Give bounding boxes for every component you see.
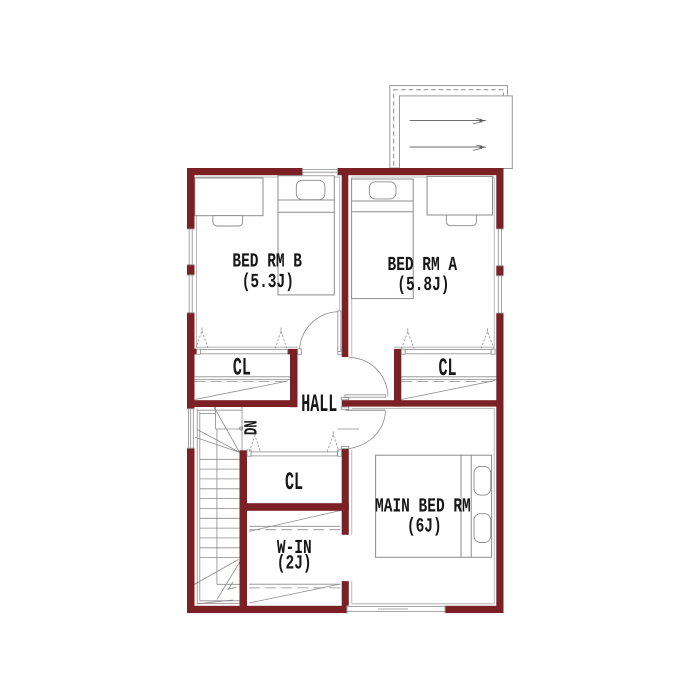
svg-text:HALL: HALL: [301, 390, 337, 419]
svg-text:CL: CL: [285, 468, 303, 497]
svg-text:DN: DN: [241, 420, 262, 435]
svg-text:(5.8J): (5.8J): [397, 274, 449, 297]
svg-text:(5.3J): (5.3J): [242, 271, 294, 294]
svg-text:CL: CL: [438, 354, 456, 383]
svg-text:(2J): (2J): [277, 552, 312, 575]
svg-text:CL: CL: [233, 354, 251, 383]
svg-text:(6J): (6J): [407, 516, 442, 539]
